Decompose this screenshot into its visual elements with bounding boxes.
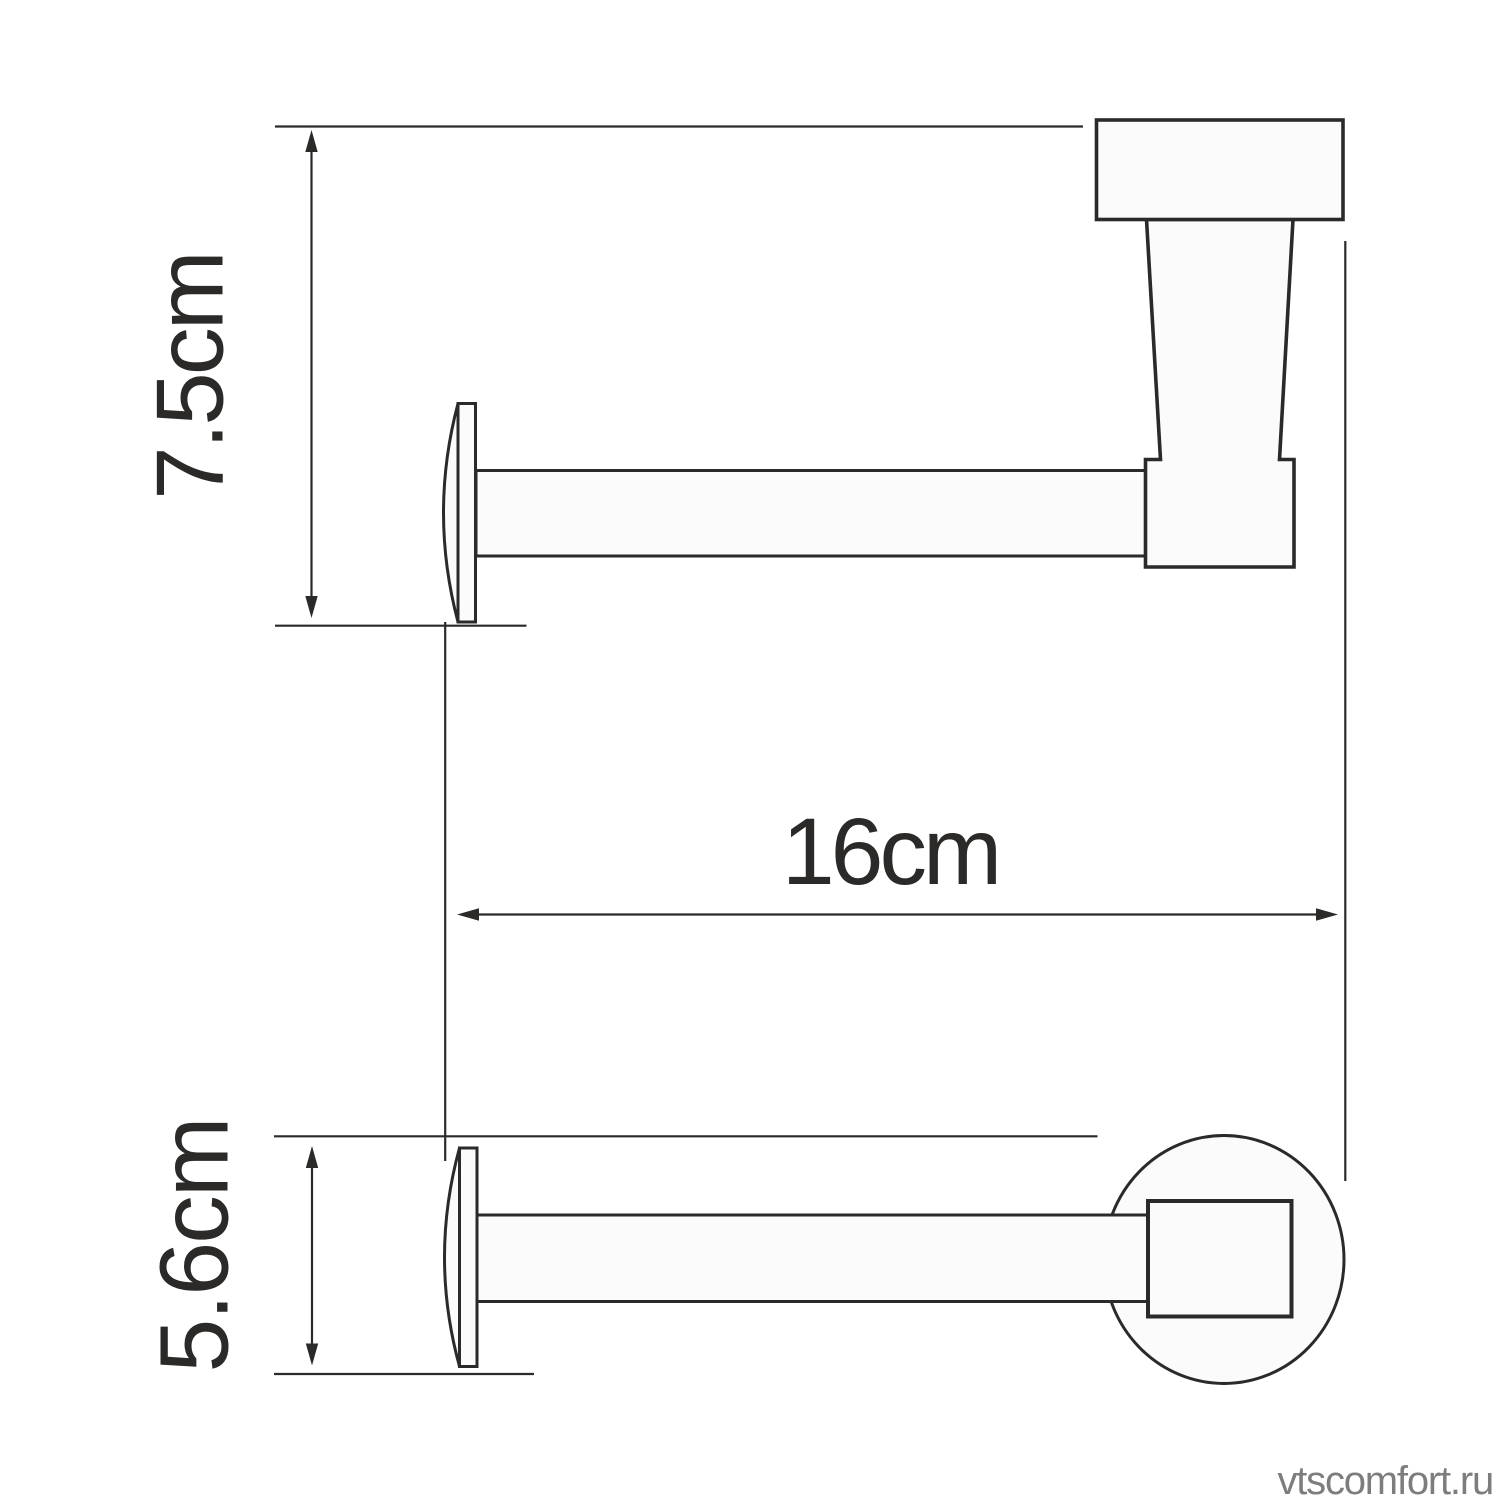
svg-text:vtscomfort.ru: vtscomfort.ru: [1277, 1459, 1493, 1503]
svg-text:5.6cm: 5.6cm: [140, 1118, 249, 1372]
svg-text:7.5cm: 7.5cm: [137, 253, 244, 499]
svg-text:16cm: 16cm: [782, 799, 998, 905]
